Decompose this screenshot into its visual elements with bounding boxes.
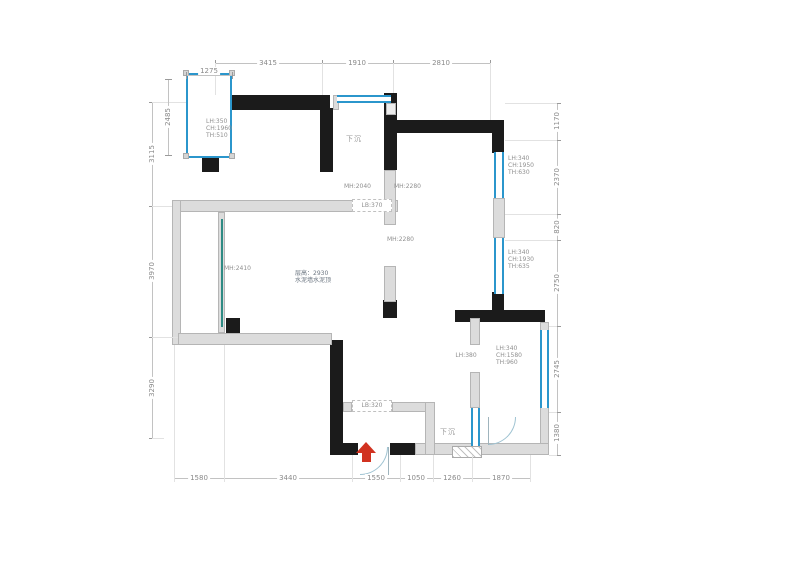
wall-living-bottom — [178, 333, 332, 345]
wall-bay-lower-stub — [202, 156, 219, 172]
dim-top-1: 3415 — [257, 59, 279, 67]
dim-right-1: 1170 — [553, 110, 561, 132]
annotation-line: CH:1930 — [508, 256, 534, 263]
wall-sunken-left — [320, 108, 333, 172]
window-sunken-top — [337, 95, 391, 103]
wall-beam-left-end — [343, 402, 352, 412]
wall-middle-lower — [384, 266, 396, 302]
bay-corner-bl — [183, 153, 189, 159]
dim-top-3: 2810 — [430, 59, 452, 67]
dim-tick — [165, 155, 172, 156]
annotation-mh2280-top: MH:2280 — [394, 183, 421, 190]
wall-right-mid-stub — [492, 292, 504, 310]
wall-top-left — [228, 95, 330, 110]
dim-left-3: 3290 — [148, 377, 156, 399]
annotation-line: TH:630 — [508, 169, 534, 176]
ext-line — [505, 240, 557, 241]
annotation-line: TH:510 — [206, 132, 232, 139]
entry-arrow-head — [356, 442, 376, 453]
wall-top-right — [397, 120, 504, 133]
ext-line — [505, 103, 557, 104]
ext-line — [433, 455, 434, 482]
room-label-sunken-bottom: 下沉 — [440, 427, 456, 437]
ceiling-note: 层高：2930 水泥墙水泥顶 — [295, 270, 331, 284]
dim-bottom-3: 1550 — [365, 474, 387, 482]
ceiling-finish: 水泥墙水泥顶 — [295, 277, 331, 284]
wall-middle-upper — [384, 170, 396, 225]
dim-tick — [186, 72, 187, 79]
entry-arrow-icon — [356, 442, 376, 462]
annotation-window-topleft: LH:350 CH:1960 TH:510 — [206, 118, 232, 139]
wall-bottom-right — [415, 443, 549, 455]
ceiling-height: 层高：2930 — [295, 270, 331, 277]
ext-line — [224, 345, 225, 482]
dim-top-inner: 1275 — [198, 67, 220, 75]
dim-tick — [232, 72, 233, 79]
annotation-line: TH:960 — [496, 359, 522, 366]
ext-line — [393, 63, 394, 93]
dim-left-inner: 2485 — [164, 106, 172, 128]
dim-right-6: 1380 — [553, 422, 561, 444]
dim-right-3: 820 — [553, 218, 561, 235]
ext-line — [152, 206, 172, 207]
annotation-line: LH:340 — [508, 155, 534, 162]
ext-line — [472, 455, 473, 482]
dim-right-4: 2750 — [553, 272, 561, 294]
entry-door-leaf — [388, 447, 389, 475]
wall-entry-left — [330, 340, 343, 455]
ext-line — [152, 337, 178, 338]
dim-top-2: 1910 — [346, 59, 368, 67]
window-right-3 — [540, 330, 549, 408]
beam-tag-lb320: LB:320 — [352, 400, 392, 412]
annotation-line: CH:1960 — [206, 125, 232, 132]
window-right-2 — [494, 238, 504, 294]
dim-bottom-4: 1050 — [405, 474, 427, 482]
annotation-mh2410: MH:2410 — [224, 265, 251, 272]
ext-line — [505, 214, 557, 215]
ext-line — [549, 455, 557, 456]
window-right-1 — [494, 152, 504, 198]
wall-sunken-bottom-left — [425, 402, 435, 455]
dim-bottom-2: 3440 — [277, 474, 299, 482]
beam-tag-lb370: LB:370 — [352, 199, 392, 212]
floor-plan-canvas: LH:350 CH:1960 TH:510 下沉 MH:2040 MH:2280… — [0, 0, 800, 567]
ext-line — [322, 63, 323, 95]
annotation-line: CH:1580 — [496, 352, 522, 359]
annotation-window-right2: LH:340 CH:1930 TH:635 — [508, 249, 534, 270]
annotation-line: LH:340 — [496, 345, 522, 352]
wall-entry-bottom-right — [390, 443, 416, 455]
dim-line-top-inner — [186, 75, 232, 76]
bath-door-leaf — [488, 417, 489, 445]
dim-left-2: 3970 — [148, 260, 156, 282]
bath-door-arc — [488, 417, 516, 445]
ext-line — [152, 438, 164, 439]
ext-line — [549, 326, 557, 327]
wall-inner-vertical-a — [470, 318, 480, 345]
entry-arrow-stem — [362, 453, 371, 462]
bay-corner-br — [229, 153, 235, 159]
dim-right-2: 2370 — [553, 166, 561, 188]
ext-line — [174, 345, 175, 482]
ext-line — [490, 63, 491, 120]
annotation-line: LH:340 — [508, 249, 534, 256]
wall-left-living — [172, 200, 181, 345]
wall-entry-bottom-left — [330, 443, 358, 455]
wall-middle-lower-stub — [383, 300, 397, 318]
dim-bottom-1: 1580 — [188, 474, 210, 482]
ext-line — [530, 455, 531, 482]
annotation-mh2280-mid: MH:2280 — [387, 236, 414, 243]
dim-bottom-5: 1260 — [441, 474, 463, 482]
wall-lower-right-horizontal — [455, 310, 545, 322]
beam-tag-lh380: LH:380 — [448, 350, 484, 362]
annotation-mh2040: MH:2040 — [344, 183, 371, 190]
door-frame-panel — [386, 103, 396, 115]
annotation-line: LH:350 — [206, 118, 232, 125]
annotation-window-right1: LH:340 CH:1950 TH:630 — [508, 155, 534, 176]
wall-inner-vertical-b — [470, 372, 480, 408]
ext-line — [505, 140, 557, 141]
dim-tick — [165, 79, 172, 80]
annotation-line: CH:1950 — [508, 162, 534, 169]
wall-right-between-windows — [493, 198, 505, 238]
room-label-sunken-top: 下沉 — [346, 134, 362, 144]
partition-glass-line — [221, 219, 223, 327]
dim-right-5: 2745 — [553, 358, 561, 380]
dim-left-1: 3115 — [148, 143, 156, 165]
ext-line — [152, 102, 186, 103]
dim-bottom-6: 1870 — [490, 474, 512, 482]
flue-hatch — [452, 446, 482, 458]
ext-line — [400, 455, 401, 482]
wall-upper-horizontal-gray — [172, 200, 353, 212]
bay-window — [186, 73, 232, 158]
annotation-window-right3: LH:340 CH:1580 TH:960 — [496, 345, 522, 366]
ext-line — [549, 412, 557, 413]
wall-right-upper-stub — [492, 133, 504, 153]
ext-line — [352, 455, 353, 482]
annotation-line: TH:635 — [508, 263, 534, 270]
